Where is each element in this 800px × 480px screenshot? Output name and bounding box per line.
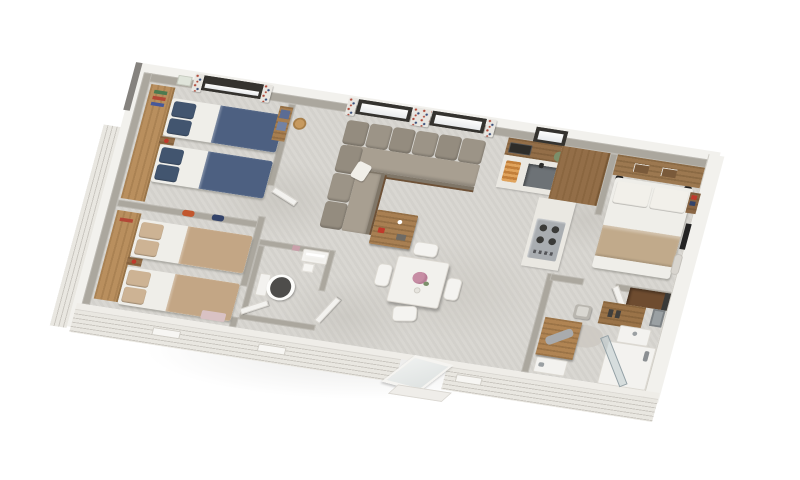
folded-towels <box>306 252 325 257</box>
gray-towel <box>544 328 574 346</box>
nightstand-books <box>691 195 698 200</box>
hanging-towel <box>301 263 314 273</box>
pillow <box>134 239 160 258</box>
toilet-seat <box>268 276 294 300</box>
stool <box>572 304 592 320</box>
table-item-red <box>377 227 385 233</box>
pillow <box>138 222 164 241</box>
wc-wall-art <box>292 245 301 251</box>
pillow <box>171 101 197 120</box>
pillow <box>121 286 147 305</box>
flower-vase <box>413 287 421 294</box>
flower-leaves <box>423 281 430 286</box>
burner <box>551 226 560 234</box>
headboard-niche <box>633 163 650 174</box>
headboard-niche <box>660 167 677 178</box>
pillow <box>166 118 192 137</box>
burner <box>536 236 545 244</box>
window-glass <box>537 131 563 143</box>
basin-faucet <box>632 331 638 336</box>
hob-knobs <box>533 249 553 255</box>
pillow <box>125 269 151 288</box>
bed-throw <box>595 225 681 268</box>
burner <box>539 224 548 232</box>
floorplan-render <box>90 82 705 391</box>
towel-on-stool <box>576 306 590 317</box>
table-cup-white <box>397 220 403 225</box>
burner <box>548 238 557 246</box>
pillow-white <box>612 181 653 209</box>
soap-bottle <box>607 309 614 317</box>
soap-bottle <box>615 310 622 318</box>
faucet <box>538 163 544 169</box>
pillow <box>158 147 184 166</box>
tray-faucet <box>538 362 545 367</box>
pillow <box>154 164 180 183</box>
table-tray <box>396 234 407 241</box>
wall-art-bedroom1 <box>176 75 192 87</box>
dining-chair-bottom <box>392 306 418 322</box>
shower-head <box>642 351 649 362</box>
nightstand-books <box>689 201 696 206</box>
pillow-white <box>649 187 690 215</box>
